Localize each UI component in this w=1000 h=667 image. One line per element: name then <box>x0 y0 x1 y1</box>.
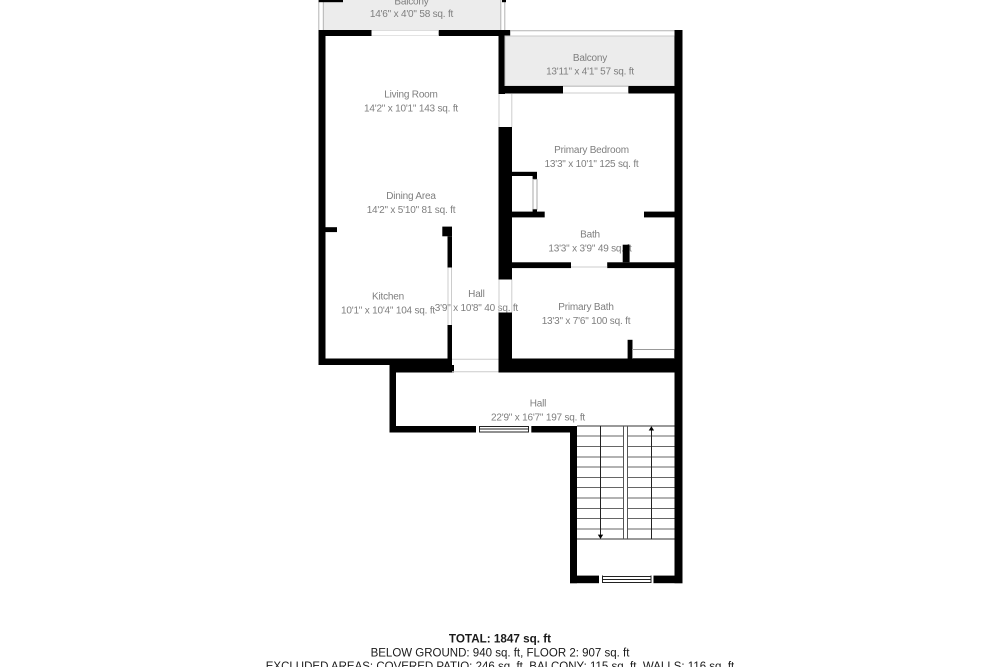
svg-text:Kitchen: Kitchen <box>372 292 404 303</box>
svg-text:Bath: Bath <box>580 230 600 241</box>
svg-text:Primary Bedroom: Primary Bedroom <box>554 145 629 156</box>
svg-text:13'3" x 10'1" 125 sq. ft: 13'3" x 10'1" 125 sq. ft <box>545 159 639 170</box>
svg-text:TOTAL: 1847 sq. ft: TOTAL: 1847 sq. ft <box>449 633 551 646</box>
svg-text:Hall: Hall <box>530 399 546 410</box>
svg-text:14'6" x 4'0" 58 sq. ft: 14'6" x 4'0" 58 sq. ft <box>370 9 454 20</box>
svg-text:13'3" x 3'9" 49 sq. ft: 13'3" x 3'9" 49 sq. ft <box>548 244 632 255</box>
svg-text:Dining Area: Dining Area <box>386 191 436 202</box>
svg-text:22'9" x 16'7" 197 sq. ft: 22'9" x 16'7" 197 sq. ft <box>491 413 585 424</box>
svg-text:Living Room: Living Room <box>384 90 437 101</box>
svg-text:Primary Bath: Primary Bath <box>558 302 613 313</box>
svg-text:Balcony: Balcony <box>573 53 607 64</box>
svg-text:EXCLUDED AREAS: COVERED PATIO:: EXCLUDED AREAS: COVERED PATIO: 246 sq. f… <box>266 661 735 667</box>
svg-text:13'11" x 4'1" 57 sq. ft: 13'11" x 4'1" 57 sq. ft <box>546 67 634 78</box>
svg-text:3'9" x 10'8" 40 sq. ft: 3'9" x 10'8" 40 sq. ft <box>435 303 519 314</box>
svg-text:BELOW GROUND: 940 sq. ft, FLOO: BELOW GROUND: 940 sq. ft, FLOOR 2: 907 s… <box>371 648 631 660</box>
svg-text:Hall: Hall <box>468 289 484 300</box>
svg-text:14'2" x 5'10" 81 sq. ft: 14'2" x 5'10" 81 sq. ft <box>367 205 456 216</box>
svg-text:10'1" x 10'4" 104 sq. ft: 10'1" x 10'4" 104 sq. ft <box>341 306 435 317</box>
svg-text:Balcony: Balcony <box>394 0 428 8</box>
svg-text:13'3" x 7'6" 100 sq. ft: 13'3" x 7'6" 100 sq. ft <box>542 316 631 327</box>
svg-text:14'2" x 10'1" 143 sq. ft: 14'2" x 10'1" 143 sq. ft <box>364 104 458 115</box>
